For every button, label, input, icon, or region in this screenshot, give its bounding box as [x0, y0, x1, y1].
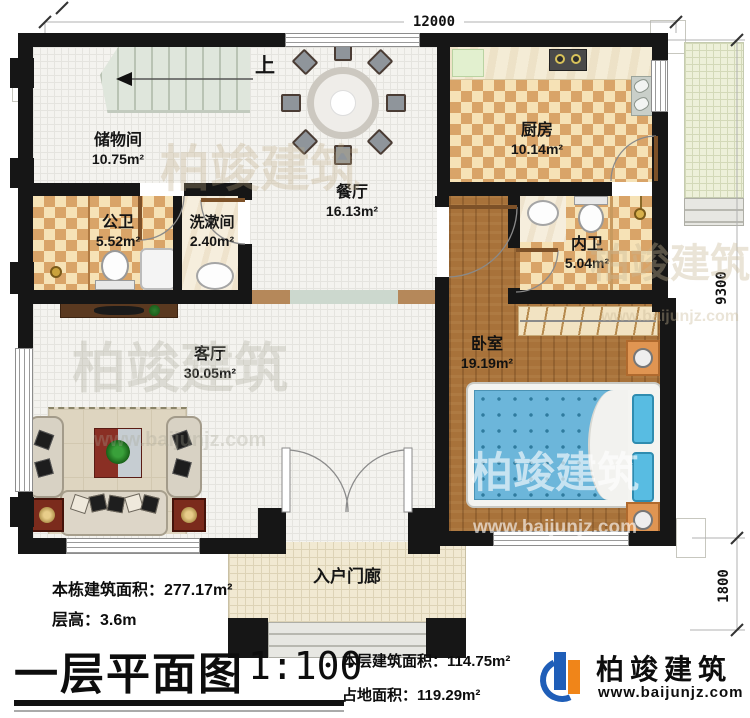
window [66, 538, 200, 554]
washroom-sink [196, 262, 234, 290]
logo-building-blue [554, 652, 566, 690]
toilet-tank [95, 280, 135, 290]
brand-logo-icon [540, 650, 588, 702]
end-table-medallion [181, 507, 197, 523]
nightstand-lamp [633, 510, 653, 530]
wall [508, 290, 668, 304]
floor-height-text: 层高：3.6m [52, 606, 136, 630]
wall-pilaster [10, 58, 34, 88]
room-area-bedroom: 19.19m² [437, 355, 537, 371]
dining-table-center [330, 90, 356, 116]
room-label-bedroom: 卧室 [437, 337, 537, 354]
dining-chair [334, 145, 352, 165]
room-area-washroom: 2.40m² [162, 233, 262, 249]
plan-title: 一层平面图 [14, 638, 244, 702]
wall [435, 196, 449, 207]
shower-head [634, 208, 646, 220]
room-label-inner-bath: 内卫 [537, 237, 637, 254]
stove-burner [555, 54, 565, 64]
wall [435, 277, 449, 531]
building-area-text: 本栋建筑面积：277.17m² [52, 576, 233, 600]
wall [660, 304, 676, 546]
window [493, 531, 629, 546]
wall [258, 508, 286, 554]
tv [94, 306, 144, 315]
wall [652, 33, 668, 60]
room-area-living: 30.05m² [160, 365, 260, 381]
plant [106, 440, 130, 464]
toilet-tank [574, 196, 608, 205]
room-label-public-bath: 公卫 [68, 215, 168, 232]
armchair-left [28, 416, 64, 498]
armchair-right [166, 416, 202, 498]
end-table-medallion [39, 507, 55, 523]
footprint-area-text: 占地面积：119.29m² [342, 684, 480, 705]
room-area-kitchen: 10.14m² [487, 141, 587, 157]
logo-building-orange [568, 660, 580, 694]
wall [418, 33, 668, 47]
threshold [398, 290, 435, 304]
bed-pillow [632, 394, 654, 444]
room-label-kitchen: 厨房 [487, 123, 587, 140]
floor-area-text: 本层建筑面积：114.75m² [342, 650, 510, 671]
brand-logo: 柏竣建筑 www.baijunjz.com [540, 646, 745, 710]
bathroom-sink [527, 200, 559, 226]
room-label-porch: 入户门廊 [272, 568, 422, 586]
room-label-storage: 储物间 [68, 133, 168, 150]
title-underline [14, 700, 344, 706]
threshold [252, 290, 290, 304]
dining-chair [281, 94, 301, 112]
title-underline-thin [14, 710, 344, 712]
wall [238, 183, 252, 200]
wall [656, 182, 668, 196]
washing-machine [140, 248, 176, 290]
wall [437, 531, 493, 546]
staircase [100, 47, 250, 113]
wardrobe-rod [520, 320, 656, 322]
room-area-inner-bath: 5.04m² [537, 255, 637, 271]
cutting-board [452, 49, 484, 77]
room-label-washroom: 洗漱间 [162, 215, 262, 231]
floor-drain [50, 266, 62, 278]
wall [437, 182, 612, 196]
stairs-up-label: 上 [250, 56, 280, 77]
wall [437, 47, 450, 182]
wall [508, 196, 520, 248]
dimension-height-main: 9300 [714, 258, 730, 318]
sofa-cushion [89, 494, 108, 513]
room-area-dining: 16.13m² [302, 203, 402, 219]
bed-pillow [632, 452, 654, 502]
wall [18, 290, 252, 304]
room-label-dining: 餐厅 [302, 185, 402, 202]
bed-duvet [588, 390, 628, 500]
dimension-height-porch: 1800 [716, 556, 732, 616]
wall-pilaster [10, 497, 34, 527]
wall [30, 33, 287, 47]
window [285, 33, 420, 47]
dining-chair [386, 94, 406, 112]
terrace-steps [684, 198, 744, 226]
corner-outline [676, 518, 706, 558]
dimension-width: 12000 [404, 14, 464, 30]
brand-website: www.baijunjz.com [598, 684, 743, 701]
brand-name: 柏竣建筑 [596, 648, 732, 688]
wall [652, 112, 668, 310]
wall [18, 538, 66, 554]
plant-small [149, 305, 160, 316]
room-label-living: 客厅 [160, 347, 260, 364]
floor-plan-canvas: 储物间 10.75m² 餐厅 16.13m² 厨房 10.14m² 公卫 5.5… [0, 0, 750, 718]
toilet [578, 203, 604, 233]
sofa-cushion [107, 495, 126, 514]
wall [18, 183, 140, 196]
window [15, 348, 33, 492]
threshold [290, 290, 398, 304]
nightstand-lamp [633, 348, 653, 368]
window [651, 60, 668, 112]
toilet [101, 250, 129, 282]
room-area-storage: 10.75m² [68, 151, 168, 167]
terrace-floor [684, 42, 744, 198]
room-area-public-bath: 5.52m² [68, 233, 168, 249]
stove-burner [571, 54, 581, 64]
